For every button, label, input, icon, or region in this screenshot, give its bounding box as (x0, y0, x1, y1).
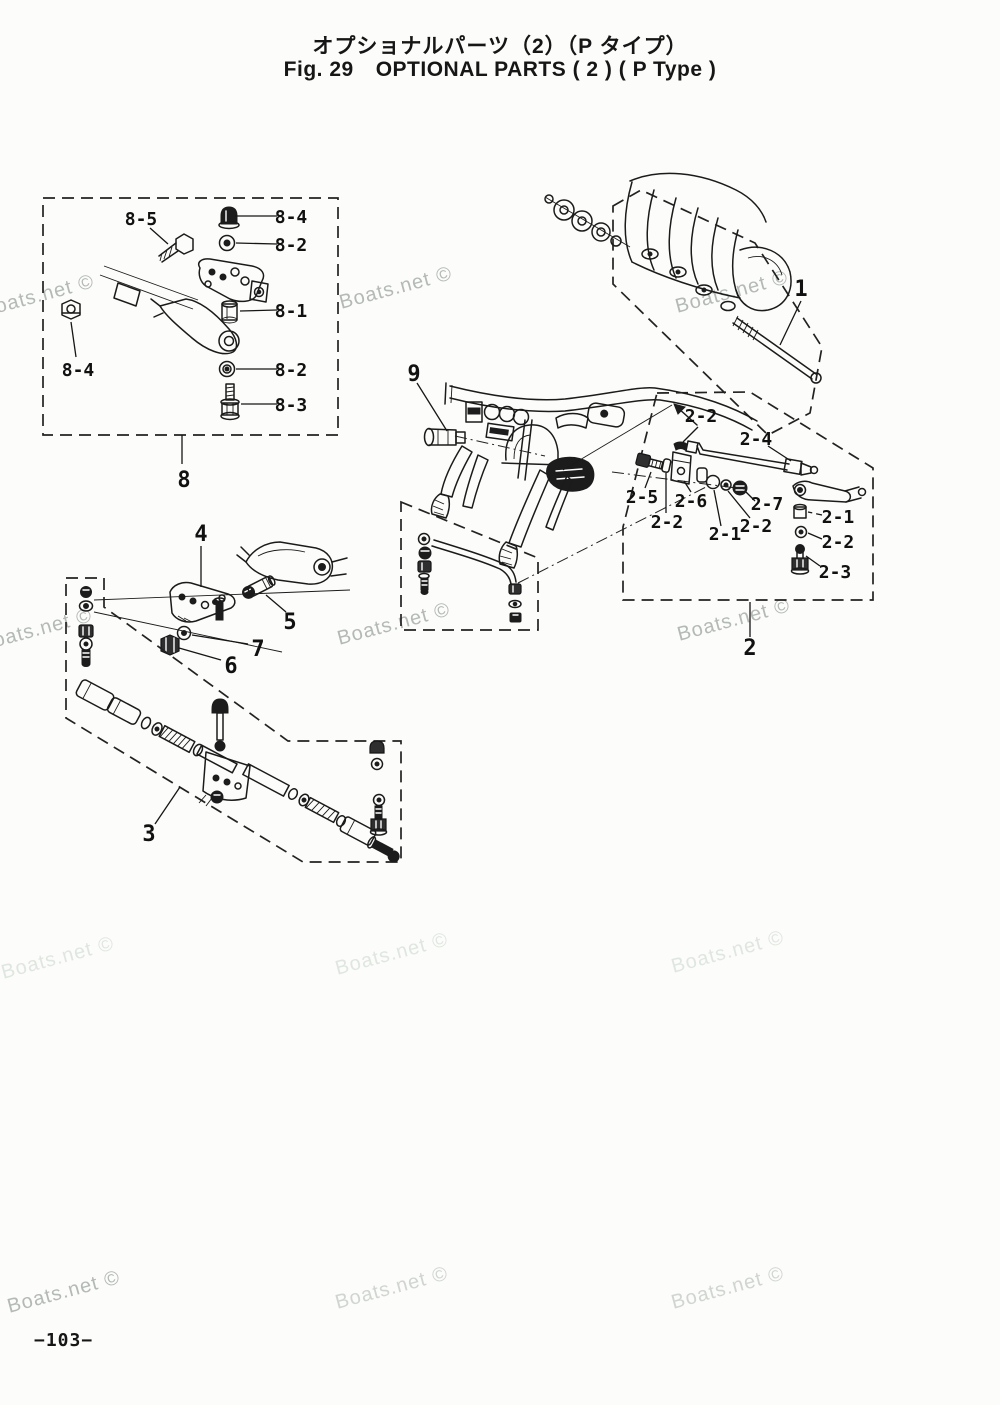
callout-8-5: 8-5 (125, 209, 158, 230)
washer-8-2-bottom-drawing (220, 362, 235, 377)
washer-drawing (287, 787, 299, 800)
washer-8-2-top-drawing (220, 236, 235, 251)
mid-parts-group (79, 542, 350, 667)
clip-2-2-drawing (674, 442, 687, 450)
bolt-2-5-drawing (635, 453, 663, 471)
page-number: −103− (34, 1330, 93, 1351)
bolt-stack-drawing (79, 587, 93, 667)
bolt-2-3-drawing (792, 545, 809, 575)
box3-fastener-stack (370, 741, 387, 835)
sleeve-drawing (106, 696, 142, 725)
callout-2-5: 2-5 (626, 487, 659, 508)
cap-nut-8-4-drawing (219, 207, 239, 229)
nut-8-4-left-drawing (62, 300, 80, 319)
callout-2-1-a: 2-1 (709, 524, 742, 545)
group-3-box (66, 578, 402, 864)
callout-2-7: 2-7 (751, 494, 784, 515)
steering-hook-drawing (793, 481, 866, 502)
callout-2-1-b: 2-1 (822, 507, 855, 528)
callout-2-3: 2-3 (819, 562, 852, 583)
parts-catalog-page: Boats.net © Boats.net © Boats.net © Boat… (0, 0, 1000, 1405)
callout-1: 1 (794, 277, 807, 302)
callout-4: 4 (194, 522, 207, 547)
bolt-8-5-drawing (159, 234, 193, 262)
nut-6-drawing (161, 635, 179, 655)
center-bracket-drawing (199, 752, 250, 806)
bushing-2-1-drawing (794, 505, 806, 519)
callout-2-2-b: 2-2 (651, 512, 684, 533)
callout-labels: 8-5 8-4 8-2 8-1 8-4 8-2 8-3 8 1 9 2-2 2-… (62, 207, 855, 847)
bracket-2-6-drawing (671, 452, 707, 484)
callout-8-4-top: 8-4 (275, 207, 308, 228)
callout-8-2-top: 8-2 (275, 235, 308, 256)
bolt-8-3-drawing (221, 384, 239, 420)
bracket-plate-drawing (199, 259, 268, 302)
callout-8-3: 8-3 (275, 395, 308, 416)
end-bolt-drawing (365, 836, 402, 864)
callout-2-2-c: 2-2 (740, 516, 773, 537)
pin-2-2-drawing (662, 459, 672, 473)
callout-6: 6 (224, 654, 237, 679)
swivel-dome-drawing (502, 425, 562, 465)
bracket-4-drawing (170, 582, 235, 622)
callout-8-2-bottom: 8-2 (275, 360, 308, 381)
callout-8-1: 8-1 (275, 301, 308, 322)
callout-8-4-left: 8-4 (62, 360, 95, 381)
arm-foot-left (431, 494, 449, 518)
washer-drawing (140, 716, 153, 730)
spring-drawing (305, 798, 338, 823)
spring-drawing (159, 726, 195, 753)
ball-2-1-drawing (707, 476, 720, 489)
tilt-lever-drawing (100, 266, 239, 354)
exploded-parts-diagram: 8-5 8-4 8-2 8-1 8-4 8-2 8-3 8 1 9 2-2 2-… (0, 0, 1000, 1405)
callout-9: 9 (407, 362, 420, 387)
steering-arm-drawing (237, 542, 347, 584)
callout-3: 3 (142, 822, 155, 847)
callout-2-2-d: 2-2 (822, 532, 855, 553)
ball-nut-2-7-drawing (733, 481, 747, 495)
callout-2-4: 2-4 (740, 429, 773, 450)
callout-2: 2 (743, 636, 756, 661)
bushing-8-1-drawing (222, 301, 237, 323)
callout-5: 5 (283, 610, 296, 635)
callout-8: 8 (177, 468, 190, 493)
callout-7: 7 (251, 637, 264, 662)
callout-2-6: 2-6 (675, 491, 708, 512)
callout-2-2-a: 2-2 (685, 406, 718, 427)
